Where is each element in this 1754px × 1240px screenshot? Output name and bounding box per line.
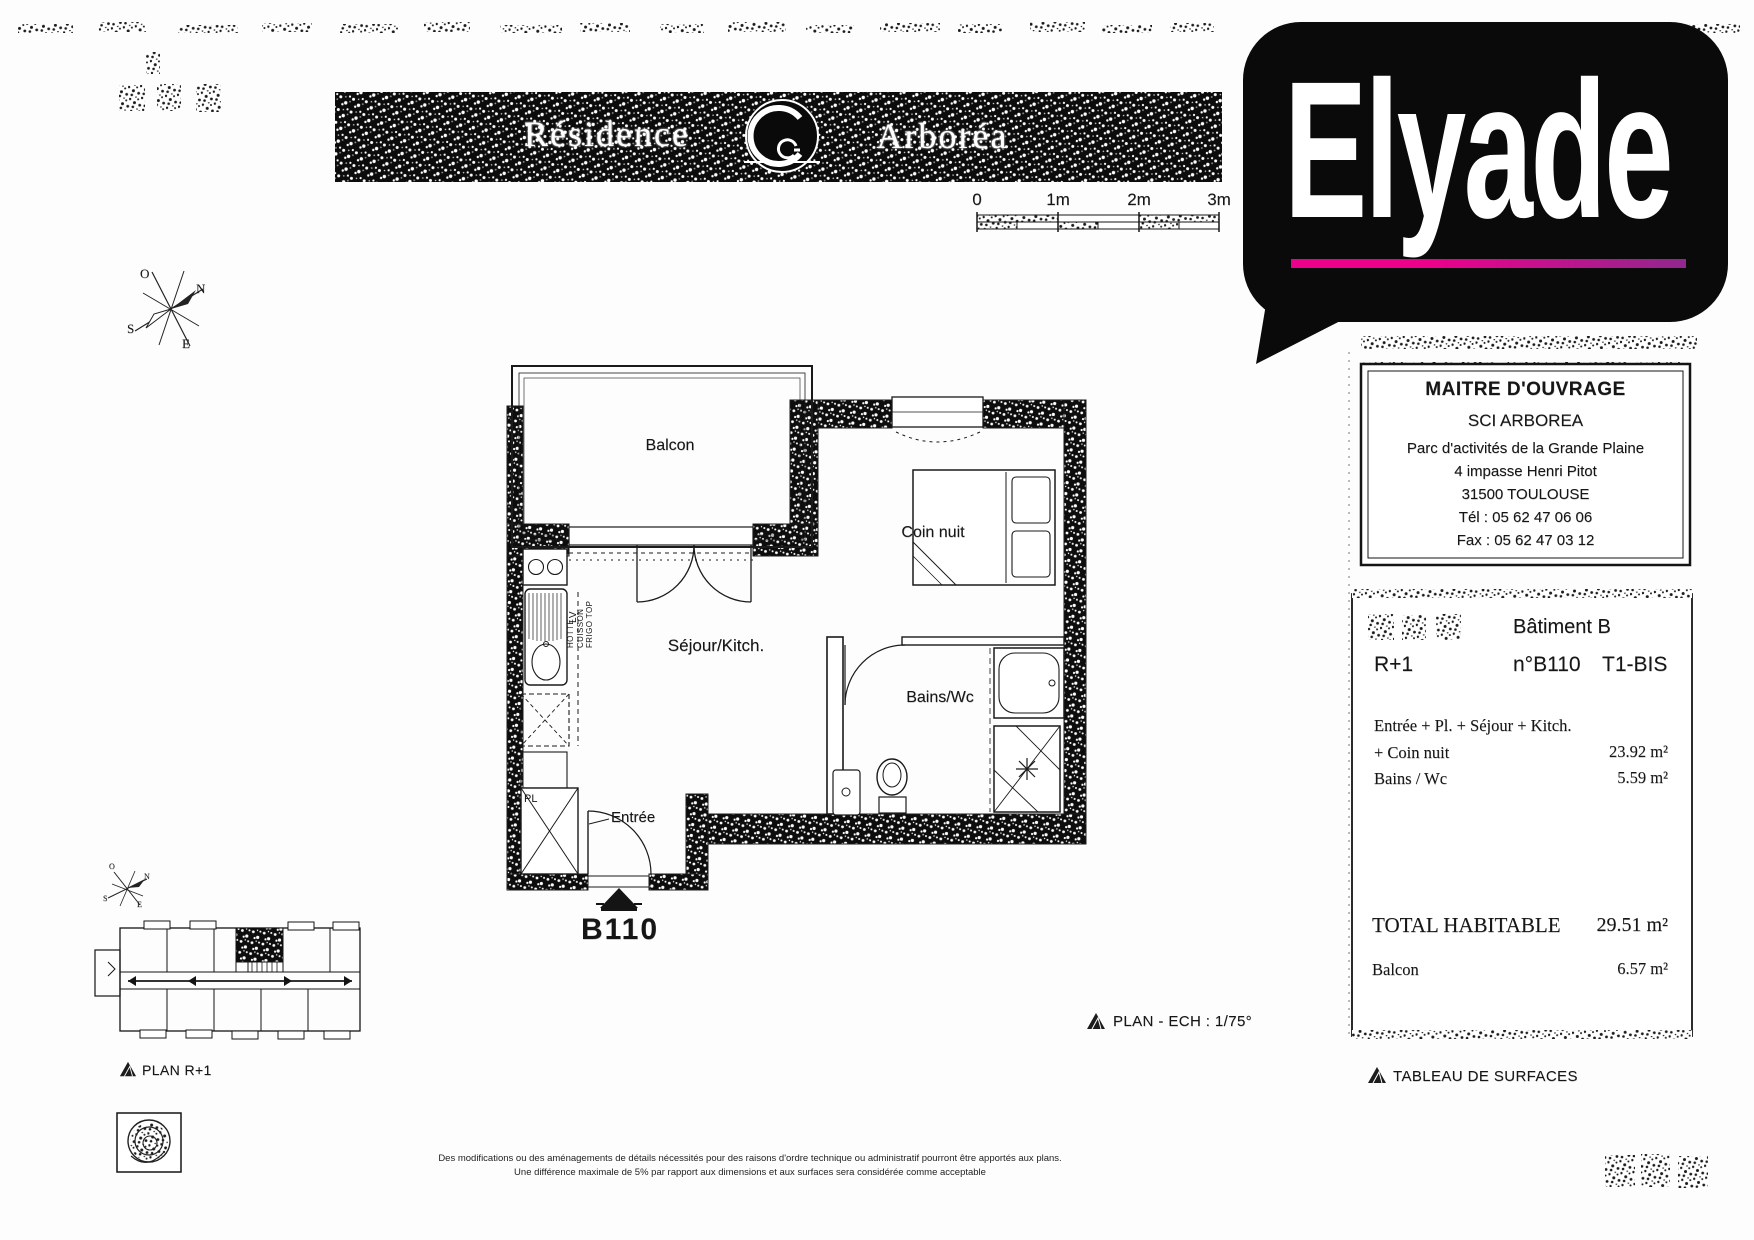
room-label-balcony: Balcon: [628, 437, 712, 455]
stamp-mark: [1368, 614, 1394, 640]
banner-residence: Résidence: [492, 113, 722, 155]
compass-north-small: N: [144, 872, 150, 881]
bathtub: [994, 648, 1064, 718]
compass-rose: [135, 271, 203, 346]
elyade-wordmark: Elyade: [1284, 53, 1671, 248]
stamp-mark: [1436, 614, 1461, 640]
disclaimer: Des modifications ou des aménagements de…: [330, 1152, 1170, 1180]
washbasin: [833, 770, 860, 815]
compass-east-small: E: [137, 900, 142, 909]
closet-label: PL: [524, 793, 537, 805]
compass-west: O: [140, 266, 149, 282]
compass-east: E: [182, 336, 190, 352]
table-building: Bâtiment B: [1513, 616, 1611, 639]
bathroom-fixtures: [833, 648, 1064, 815]
table-balcony-value: 6.57 m²: [1556, 959, 1668, 979]
table-unit: n°B110: [1513, 653, 1581, 677]
table-total-label: TOTAL HABITABLE: [1372, 913, 1561, 938]
scanned-plan-page: Résidence Arboréa Elyade 0 1m 2m 3m O N …: [0, 0, 1754, 1240]
compass-west-small: O: [109, 862, 115, 871]
key-plan: [95, 921, 360, 1039]
mountain-icon: [120, 1062, 136, 1076]
table-row-label: + Coin nuit: [1374, 743, 1449, 763]
room-label-bath: Bains/Wc: [900, 689, 980, 707]
pillow: [1012, 531, 1050, 577]
cooktop: [523, 549, 567, 585]
owner-company: SCI ARBOREA: [1361, 411, 1690, 431]
stamp-mark: [1402, 615, 1426, 640]
owner-address: Parc d'activités de la Grande Plaine 4 i…: [1361, 437, 1690, 552]
highlighted-unit: [236, 928, 283, 962]
entry-arrow: [596, 888, 642, 911]
toilet: [877, 759, 907, 795]
bay-window: [569, 527, 753, 560]
room-label-entry: Entrée: [611, 809, 655, 826]
caption-plan-scale: PLAN - ECH : 1/75°: [1113, 1013, 1252, 1030]
mountain-icon: [1368, 1067, 1386, 1083]
kitchen-fixtures: [521, 549, 578, 788]
scale-label-2m: 2m: [1119, 190, 1159, 210]
cg-stamp: [117, 1113, 181, 1172]
mountain-icon: [1087, 1013, 1105, 1029]
scale-label-0: 0: [957, 190, 997, 210]
scale-label-1m: 1m: [1038, 190, 1078, 210]
table-balcony-label: Balcon: [1372, 960, 1419, 980]
bathroom-door-arc: [845, 645, 905, 705]
pillow: [1012, 477, 1050, 523]
caption-plan-floor: PLAN R+1: [142, 1062, 212, 1078]
unit-number: B110: [574, 913, 666, 947]
banner-arborea: Arboréa: [840, 115, 1045, 157]
shower: [994, 726, 1060, 812]
stairs: [248, 962, 283, 972]
cabinet: [521, 752, 567, 788]
stamp-marks-topleft: [119, 84, 221, 112]
caption-surface-table: TABLEAU DE SURFACES: [1393, 1068, 1578, 1085]
stamp-marks-bottomright: [1605, 1154, 1708, 1188]
owner-title: MAITRE D'OUVRAGE: [1361, 379, 1690, 401]
room-label-bedroom: Coin nuit: [888, 524, 978, 542]
elyade-underline: [1291, 259, 1686, 268]
entry-label-leader: [589, 819, 609, 824]
scale-label-3m: 3m: [1199, 190, 1239, 210]
table-row-label: Entrée + Pl. + Séjour + Kitch.: [1374, 716, 1571, 736]
room-label-living: Séjour/Kitch.: [660, 636, 772, 656]
table-floor: R+1: [1374, 653, 1413, 677]
kitchen-appliance-labels: HOTTE CUISSON FRIGO TOP: [566, 601, 595, 648]
table-total-value: 29.51 m²: [1556, 914, 1668, 937]
french-door: [637, 545, 751, 602]
compass-south: S: [127, 321, 134, 337]
bedroom-window: [892, 397, 983, 442]
table-row-value: 23.92 m²: [1556, 742, 1668, 762]
compass-north: N: [196, 281, 205, 297]
table-row-label: Bains / Wc: [1374, 769, 1447, 789]
table-type: T1-BIS: [1602, 653, 1667, 677]
title-banner: [335, 92, 1222, 182]
compass-south-small: S: [103, 894, 107, 903]
balcony-railing: [512, 366, 812, 547]
scale-bar: [977, 212, 1219, 232]
dishwasher-label: LV: [568, 612, 579, 624]
table-row-value: 5.59 m²: [1556, 768, 1668, 788]
